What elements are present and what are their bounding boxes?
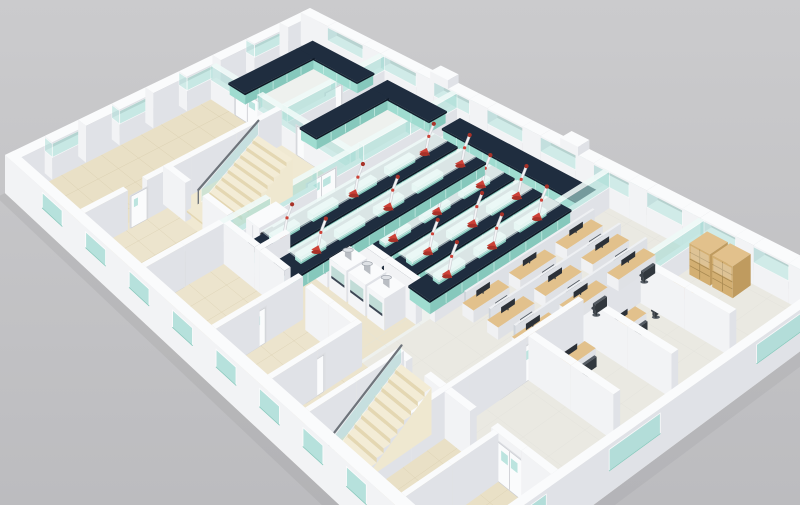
scene-canvas	[0, 0, 800, 505]
floorplan-3d-render	[0, 0, 800, 505]
